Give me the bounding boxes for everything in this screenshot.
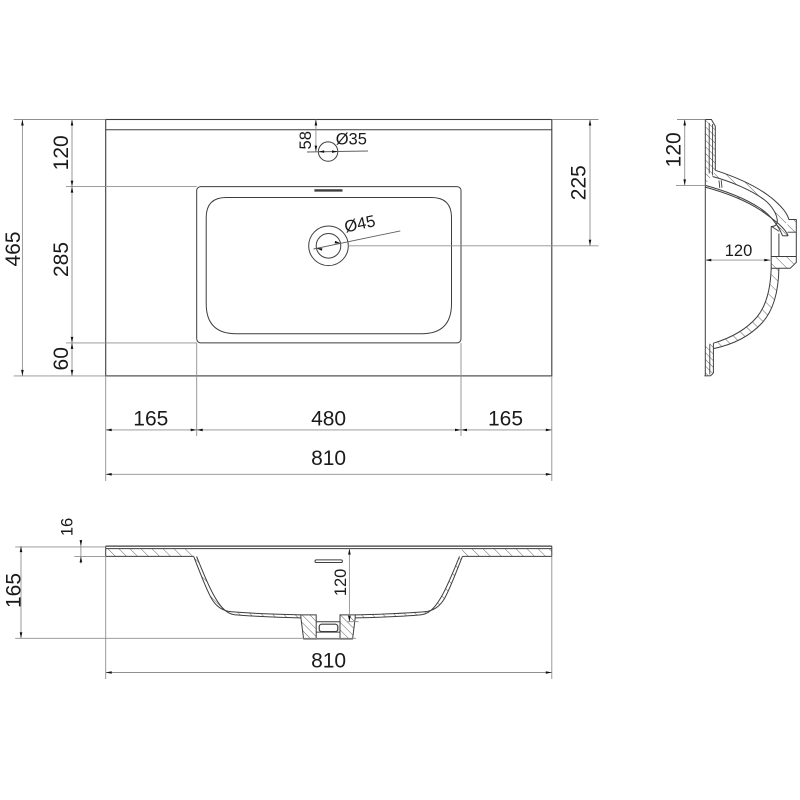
svg-text:Ø35: Ø35 xyxy=(336,131,367,149)
svg-text:165: 165 xyxy=(488,408,523,431)
svg-text:810: 810 xyxy=(311,447,346,470)
svg-text:285: 285 xyxy=(50,242,73,277)
svg-text:60: 60 xyxy=(50,347,73,370)
svg-text:120: 120 xyxy=(662,132,685,167)
svg-text:58: 58 xyxy=(297,131,315,149)
svg-text:225: 225 xyxy=(568,165,591,200)
svg-text:465: 465 xyxy=(2,231,25,266)
svg-text:810: 810 xyxy=(311,649,346,672)
svg-text:480: 480 xyxy=(311,408,346,431)
svg-text:120: 120 xyxy=(332,569,350,597)
svg-text:120: 120 xyxy=(725,242,753,260)
svg-text:165: 165 xyxy=(133,408,168,431)
svg-text:16: 16 xyxy=(59,518,77,536)
svg-text:165: 165 xyxy=(2,573,25,608)
svg-text:120: 120 xyxy=(50,135,73,170)
